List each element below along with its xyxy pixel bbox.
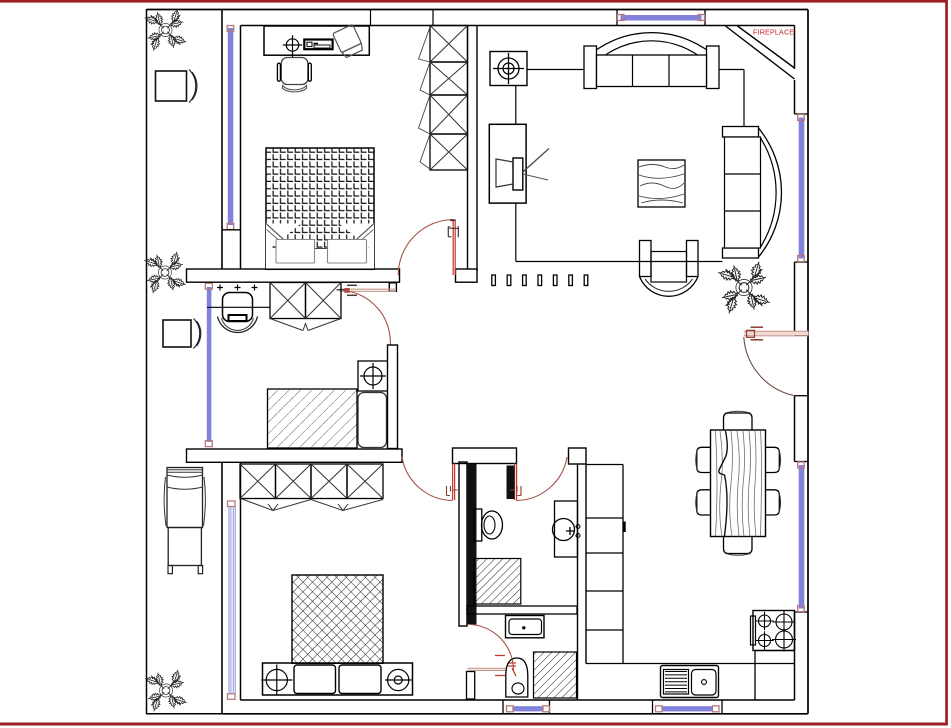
svg-text:FIREPLACE: FIREPLACE — [753, 29, 794, 37]
